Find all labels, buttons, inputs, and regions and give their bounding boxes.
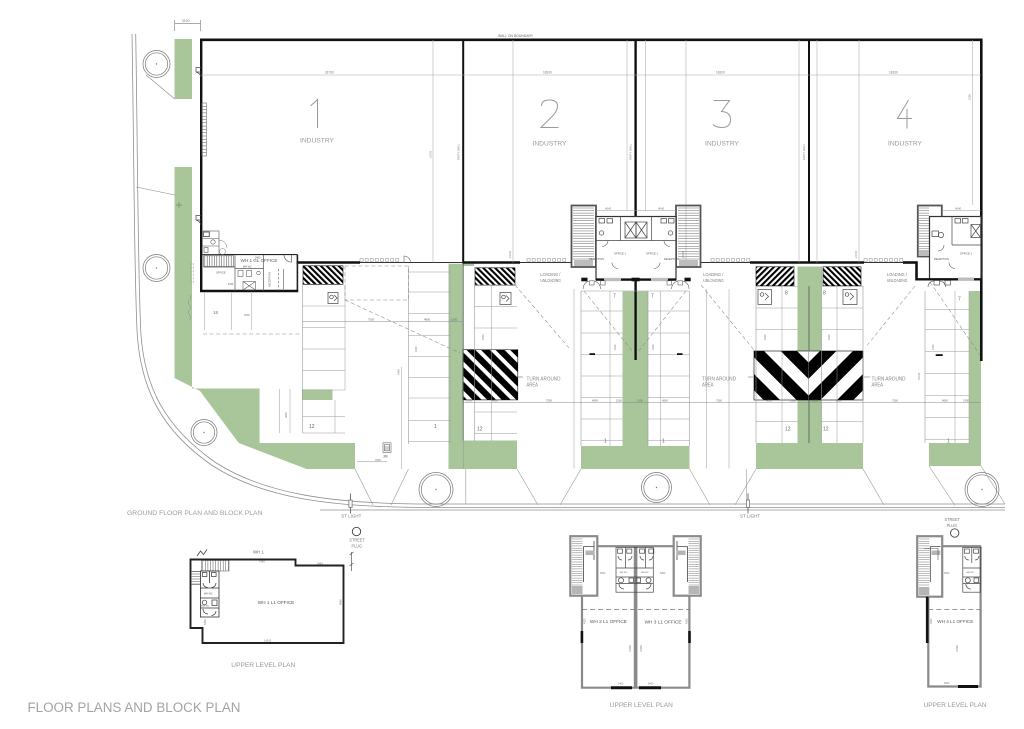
svg-text:WH WC: WH WC: [620, 572, 628, 574]
svg-text:3100: 3100: [967, 94, 971, 100]
svg-text:3100: 3100: [182, 19, 190, 23]
svg-text:UPPER LEVEL PLAN: UPPER LEVEL PLAN: [924, 702, 987, 709]
svg-text:15780: 15780: [956, 645, 959, 652]
svg-text:4800: 4800: [592, 398, 598, 402]
svg-text:STREET: STREET: [349, 538, 365, 543]
svg-text:5400: 5400: [648, 683, 654, 686]
svg-text:INDUSTRY: INDUSTRY: [705, 141, 739, 148]
svg-text:4000: 4000: [584, 618, 587, 624]
svg-text:1500: 1500: [812, 398, 818, 402]
svg-text:7500: 7500: [892, 398, 898, 402]
svg-text:OFFICE: OFFICE: [216, 271, 226, 275]
svg-text:7500: 7500: [546, 398, 552, 402]
svg-text:ST LIGHT: ST LIGHT: [341, 514, 361, 519]
svg-text:INDUSTRY: INDUSTRY: [300, 138, 334, 145]
svg-text:8: 8: [785, 291, 788, 297]
svg-text:LOADING /: LOADING /: [703, 272, 724, 278]
svg-text:UPPER LEVEL PLAN: UPPER LEVEL PLAN: [231, 662, 295, 669]
svg-text:J/B: J/B: [383, 455, 388, 459]
svg-text:8960: 8960: [339, 599, 343, 605]
svg-text:4700: 4700: [228, 283, 234, 286]
svg-text:4800: 4800: [662, 398, 668, 402]
svg-text:WH 3 L1 OFFICE: WH 3 L1 OFFICE: [645, 620, 682, 625]
svg-text:WH 1 L1 OFFICE: WH 1 L1 OFFICE: [258, 600, 295, 605]
svg-text:OFFICE 1: OFFICE 1: [960, 252, 972, 256]
svg-text:UNLOADING: UNLOADING: [887, 278, 908, 284]
svg-text:2400: 2400: [415, 346, 418, 352]
svg-text:21700: 21700: [508, 250, 512, 258]
svg-text:1: 1: [604, 439, 607, 445]
svg-text:OFFICE 1: OFFICE 1: [646, 252, 658, 256]
svg-text:4800: 4800: [836, 398, 842, 402]
svg-text:PARTY WALL: PARTY WALL: [457, 143, 461, 160]
svg-text:2400: 2400: [614, 344, 617, 350]
svg-text:4000: 4000: [686, 618, 689, 624]
svg-text:WALL ON BOUNDARY: WALL ON BOUNDARY: [498, 34, 534, 38]
svg-text:12: 12: [309, 424, 315, 430]
svg-text:3463: 3463: [317, 561, 323, 565]
svg-text:2500: 2500: [244, 313, 250, 317]
svg-text:1500: 1500: [451, 317, 458, 321]
svg-text:4800: 4800: [492, 398, 498, 402]
svg-text:AREA: AREA: [702, 383, 714, 389]
svg-text:PLUG: PLUG: [352, 543, 363, 548]
svg-text:4040: 4040: [658, 206, 665, 210]
svg-text:7: 7: [651, 294, 654, 300]
svg-text:OFFICE 1: OFFICE 1: [614, 252, 626, 256]
svg-text:4000: 4000: [930, 618, 933, 624]
svg-text:TURN AROUND: TURN AROUND: [702, 377, 736, 383]
svg-text:PARTY WALL: PARTY WALL: [629, 143, 633, 160]
svg-text:TURN AROUND: TURN AROUND: [527, 377, 561, 383]
svg-text:5960: 5960: [600, 572, 606, 575]
svg-text:8: 8: [823, 291, 826, 297]
svg-text:2400: 2400: [482, 334, 485, 340]
svg-text:RECEPTION: RECEPTION: [268, 272, 272, 287]
svg-text:15780: 15780: [629, 645, 632, 652]
svg-text:1500: 1500: [790, 398, 796, 402]
svg-text:INDUSTRY: INDUSTRY: [533, 141, 567, 148]
svg-text:1500: 1500: [963, 398, 969, 402]
svg-text:7: 7: [613, 294, 616, 300]
svg-text:7500: 7500: [368, 317, 375, 321]
svg-text:1: 1: [947, 439, 950, 445]
svg-text:4500: 4500: [375, 458, 381, 462]
svg-text:WH WC: WH WC: [641, 572, 649, 574]
svg-text:WH WC: WH WC: [966, 572, 974, 574]
svg-text:1000: 1000: [466, 398, 472, 402]
svg-text:18100: 18100: [889, 71, 898, 75]
svg-text:AMB WC: AMB WC: [201, 605, 210, 608]
svg-text:21700: 21700: [917, 372, 921, 380]
svg-text:TURN AROUND: TURN AROUND: [872, 377, 906, 383]
svg-text:18100: 18100: [716, 71, 725, 75]
svg-text:STREET: STREET: [945, 517, 961, 522]
svg-text:FLOOR PLANS AND BLOCK PLAN: FLOOR PLANS AND BLOCK PLAN: [28, 700, 241, 715]
svg-text:5430: 5430: [203, 619, 207, 625]
svg-text:7: 7: [958, 297, 961, 303]
svg-text:4800: 4800: [766, 398, 772, 402]
svg-text:5400: 5400: [618, 683, 624, 686]
svg-text:RECEPTION: RECEPTION: [934, 257, 949, 261]
svg-text:18100: 18100: [543, 71, 552, 75]
svg-text:2400: 2400: [652, 344, 655, 350]
svg-text:1500: 1500: [616, 398, 622, 402]
svg-text:5960: 5960: [660, 572, 666, 575]
svg-text:3460: 3460: [255, 256, 261, 259]
svg-text:2400: 2400: [828, 334, 831, 340]
svg-text:1: 1: [434, 424, 437, 430]
svg-text:2400: 2400: [932, 344, 935, 350]
svg-text:12: 12: [477, 427, 483, 433]
svg-text:2400: 2400: [397, 369, 401, 375]
svg-text:1: 1: [662, 439, 665, 445]
svg-text:WH 2 L1 OFFICE: WH 2 L1 OFFICE: [590, 619, 627, 624]
svg-text:12: 12: [823, 427, 829, 433]
svg-text:18: 18: [213, 310, 219, 315]
svg-text:7500: 7500: [716, 398, 722, 402]
svg-text:5960: 5960: [944, 572, 950, 575]
svg-text:4040: 4040: [955, 206, 962, 210]
svg-text:PLUG: PLUG: [947, 523, 958, 528]
svg-text:14100: 14100: [264, 639, 272, 643]
svg-text:LOADING /: LOADING /: [887, 272, 908, 278]
svg-text:RECEPTION: RECEPTION: [589, 257, 604, 261]
svg-text:WH 4 L1 OFFICE: WH 4 L1 OFFICE: [937, 619, 973, 624]
svg-text:UNLOADING: UNLOADING: [540, 278, 561, 284]
svg-text:15780: 15780: [640, 645, 643, 652]
svg-text:INDUSTRY: INDUSTRY: [888, 141, 922, 148]
svg-text:4800: 4800: [284, 412, 288, 418]
svg-text:4800: 4800: [424, 317, 431, 321]
svg-text:21700: 21700: [429, 150, 433, 158]
svg-text:1500: 1500: [637, 398, 643, 402]
svg-text:7140: 7140: [259, 560, 265, 564]
svg-text:WH 1: WH 1: [253, 550, 265, 555]
svg-text:31700: 31700: [325, 71, 334, 75]
svg-text:AREA: AREA: [527, 383, 539, 389]
svg-text:WH WC: WH WC: [243, 265, 252, 268]
svg-text:GROUND FLOOR PLAN AND BLOCK PL: GROUND FLOOR PLAN AND BLOCK PLAN: [127, 510, 263, 517]
svg-text:5400: 5400: [944, 682, 950, 685]
svg-text:2400: 2400: [764, 334, 767, 340]
svg-text:4040: 4040: [605, 206, 612, 210]
svg-text:PARTY WALL: PARTY WALL: [802, 143, 806, 160]
svg-text:AREA: AREA: [872, 383, 884, 389]
svg-text:RECEPTION: RECEPTION: [664, 257, 679, 261]
svg-text:UNLOADING: UNLOADING: [703, 278, 724, 284]
svg-text:UPPER LEVEL PLAN: UPPER LEVEL PLAN: [610, 702, 673, 709]
svg-text:21700: 21700: [854, 250, 858, 258]
svg-text:ST LIGHT: ST LIGHT: [740, 514, 760, 519]
svg-text:LOADING /: LOADING /: [540, 272, 561, 278]
svg-text:12: 12: [785, 427, 791, 433]
svg-text:4800: 4800: [942, 398, 948, 402]
svg-text:WH WC: WH WC: [204, 593, 213, 596]
